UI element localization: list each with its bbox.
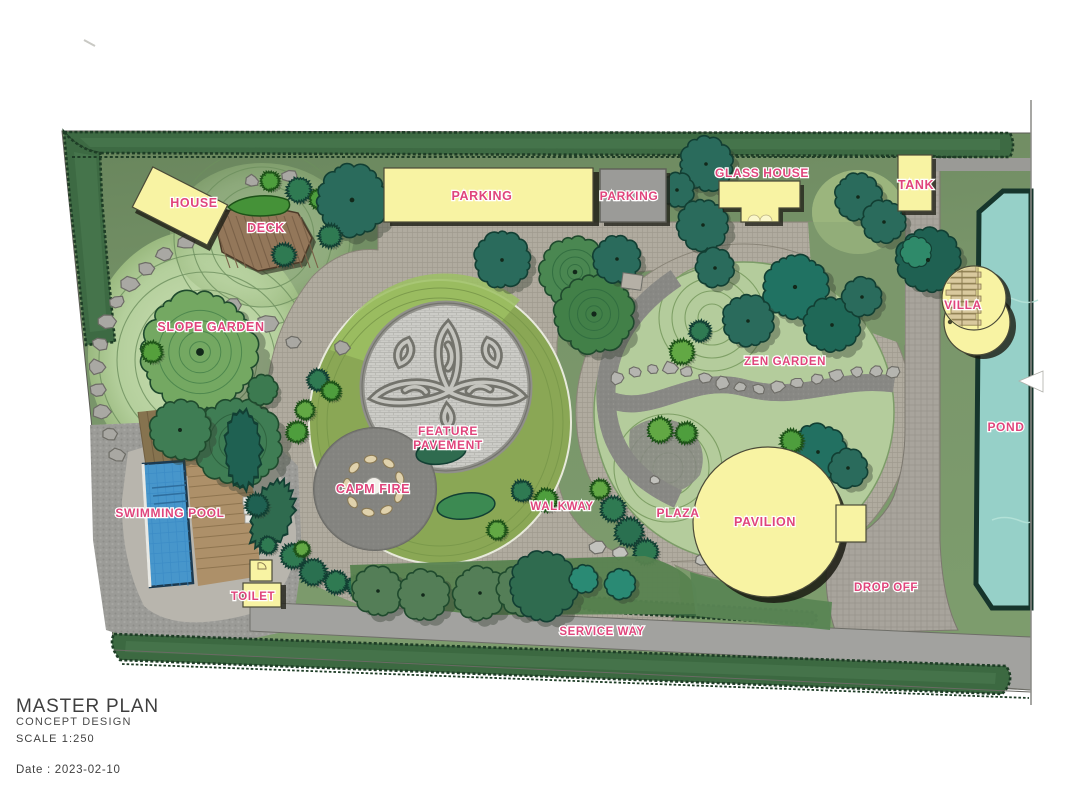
svg-text:PLAZA: PLAZA <box>657 506 700 520</box>
svg-text:ZEN GARDEN: ZEN GARDEN <box>744 356 826 368</box>
svg-text:PAVILION: PAVILION <box>734 515 796 529</box>
svg-text:PAVEMENT: PAVEMENT <box>413 438 483 452</box>
svg-text:SWIMMING POOL: SWIMMING POOL <box>115 506 224 520</box>
svg-text:TANK: TANK <box>898 178 934 192</box>
svg-text:MASTER PLAN: MASTER PLAN <box>16 696 159 717</box>
svg-text:PARKING: PARKING <box>452 189 513 203</box>
svg-text:CONCEPT DESIGN: CONCEPT DESIGN <box>16 716 132 728</box>
svg-text:Date : 2023-02-10: Date : 2023-02-10 <box>16 764 121 776</box>
svg-text:DROP OFF: DROP OFF <box>854 582 918 594</box>
svg-text:SERVICE WAY: SERVICE WAY <box>559 626 644 638</box>
svg-text:TOILET: TOILET <box>231 591 275 603</box>
svg-text:FEATURE: FEATURE <box>418 424 478 438</box>
svg-text:POND: POND <box>987 420 1024 434</box>
svg-text:HOUSE: HOUSE <box>170 196 217 210</box>
svg-text:VILLA: VILLA <box>944 298 982 312</box>
svg-text:SLOPE GARDEN: SLOPE GARDEN <box>157 320 264 334</box>
svg-text:WALKWAY: WALKWAY <box>530 501 593 513</box>
svg-text:GLASS HOUSE: GLASS HOUSE <box>715 166 809 180</box>
svg-text:SCALE 1:250: SCALE 1:250 <box>16 733 95 745</box>
svg-text:CAPM FIRE: CAPM FIRE <box>336 482 410 496</box>
svg-text:PARKING: PARKING <box>600 189 659 203</box>
svg-text:DECK: DECK <box>247 221 285 235</box>
